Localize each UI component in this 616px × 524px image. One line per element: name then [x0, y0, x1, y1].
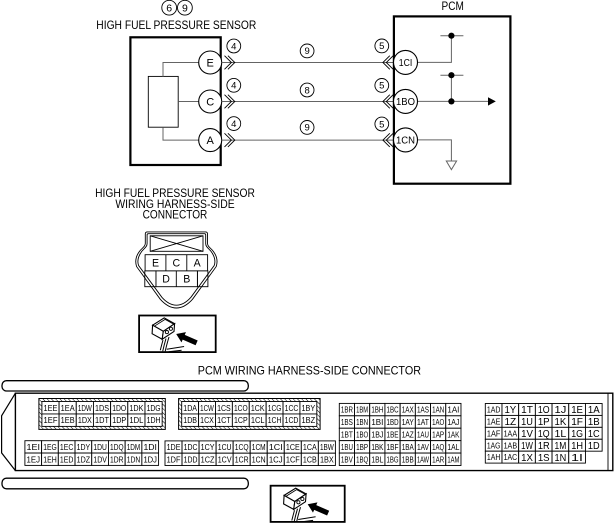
svg-text:4: 4: [231, 81, 236, 92]
svg-text:1BB: 1BB: [402, 454, 414, 464]
svg-text:1AV: 1AV: [417, 442, 429, 452]
svg-text:1CW: 1CW: [200, 403, 214, 413]
svg-text:1EC: 1EC: [60, 442, 74, 452]
svg-text:1N: 1N: [555, 452, 567, 464]
svg-text:1DF: 1DF: [167, 454, 181, 464]
svg-text:1EA: 1EA: [61, 403, 75, 413]
svg-text:1DE: 1DE: [167, 442, 181, 452]
svg-text:1BD: 1BD: [387, 417, 399, 427]
svg-text:C: C: [173, 258, 181, 270]
svg-text:1AZ: 1AZ: [402, 429, 414, 439]
svg-text:1AN: 1AN: [432, 405, 444, 415]
svg-text:1BO: 1BO: [356, 429, 368, 439]
svg-text:1CR: 1CR: [235, 454, 249, 464]
svg-text:8: 8: [304, 85, 309, 96]
svg-text:1DK: 1DK: [129, 403, 143, 413]
svg-text:1DD: 1DD: [184, 454, 198, 464]
svg-text:1AA: 1AA: [504, 428, 518, 438]
svg-text:CONNECTOR: CONNECTOR: [143, 209, 208, 222]
svg-text:1BE: 1BE: [387, 429, 399, 439]
svg-text:1X: 1X: [521, 452, 533, 464]
svg-text:1BO: 1BO: [396, 97, 415, 108]
svg-text:1AL: 1AL: [447, 442, 459, 452]
svg-text:1CX: 1CX: [200, 415, 214, 425]
svg-text:1CS: 1CS: [217, 403, 231, 413]
svg-text:1DN: 1DN: [127, 454, 141, 464]
svg-text:1CN: 1CN: [396, 136, 415, 147]
svg-text:1DO: 1DO: [112, 403, 126, 413]
svg-text:1U: 1U: [521, 416, 533, 428]
svg-text:1CE: 1CE: [286, 442, 300, 452]
svg-text:1CQ: 1CQ: [235, 442, 249, 452]
svg-text:1W: 1W: [521, 440, 533, 452]
svg-text:1AG: 1AG: [487, 440, 501, 450]
svg-text:1G: 1G: [571, 428, 583, 440]
svg-text:1M: 1M: [555, 440, 567, 452]
svg-text:1BV: 1BV: [341, 454, 353, 464]
svg-text:1CU: 1CU: [218, 442, 232, 452]
svg-text:1AT: 1AT: [417, 417, 430, 427]
svg-text:1AU: 1AU: [417, 429, 429, 439]
svg-text:1CY: 1CY: [201, 442, 215, 452]
svg-text:1AO: 1AO: [432, 417, 444, 427]
svg-text:1A: 1A: [588, 404, 600, 416]
svg-text:1BJ: 1BJ: [371, 429, 383, 439]
svg-text:1DM: 1DM: [127, 442, 141, 452]
svg-text:4: 4: [231, 41, 236, 52]
svg-text:1AY: 1AY: [402, 417, 414, 427]
svg-text:1CO: 1CO: [234, 403, 248, 413]
svg-text:1AB: 1AB: [504, 440, 518, 450]
svg-text:5: 5: [379, 81, 384, 92]
svg-text:A: A: [194, 258, 202, 270]
svg-text:1BP: 1BP: [356, 442, 368, 452]
svg-text:1BC: 1BC: [387, 405, 399, 415]
svg-text:1S: 1S: [538, 452, 550, 464]
svg-text:1BN: 1BN: [356, 417, 368, 427]
svg-text:HIGH FUEL PRESSURE SENSOR: HIGH FUEL PRESSURE SENSOR: [96, 19, 256, 32]
svg-text:1F: 1F: [571, 416, 583, 428]
svg-text:1D: 1D: [588, 440, 600, 452]
svg-text:1BL: 1BL: [371, 454, 383, 464]
svg-text:1CT: 1CT: [217, 415, 231, 425]
svg-text:1DG: 1DG: [147, 403, 161, 413]
svg-text:1BG: 1BG: [387, 454, 399, 464]
svg-text:1EJ: 1EJ: [26, 454, 40, 464]
svg-text:1CJ: 1CJ: [269, 454, 283, 464]
svg-text:1DW: 1DW: [78, 403, 93, 413]
svg-text:1O: 1O: [538, 404, 550, 416]
svg-text:D: D: [162, 274, 170, 286]
svg-text:9: 9: [304, 123, 309, 134]
svg-text:1BS: 1BS: [341, 417, 353, 427]
svg-text:1CZ: 1CZ: [201, 454, 215, 464]
svg-text:1DJ: 1DJ: [143, 454, 157, 464]
svg-text:1AD: 1AD: [487, 404, 500, 414]
svg-text:1DI: 1DI: [143, 442, 157, 452]
svg-text:B: B: [183, 274, 190, 286]
svg-text:1CD: 1CD: [285, 415, 299, 425]
svg-text:E: E: [207, 57, 214, 69]
svg-text:1AK: 1AK: [447, 429, 459, 439]
svg-text:4: 4: [231, 119, 236, 130]
svg-text:1BF: 1BF: [387, 442, 399, 452]
svg-text:6: 6: [166, 2, 172, 14]
svg-text:1CA: 1CA: [303, 442, 317, 452]
svg-text:1CG: 1CG: [268, 403, 282, 413]
svg-text:1EI: 1EI: [26, 442, 40, 452]
svg-text:1BZ: 1BZ: [302, 415, 316, 425]
svg-text:C: C: [206, 96, 214, 108]
svg-text:1EB: 1EB: [61, 415, 75, 425]
svg-text:1AC: 1AC: [504, 452, 517, 462]
svg-text:1CM: 1CM: [252, 442, 266, 452]
svg-text:5: 5: [379, 119, 384, 130]
svg-text:1BK: 1BK: [371, 442, 383, 452]
svg-text:1CN: 1CN: [252, 454, 266, 464]
svg-text:1AR: 1AR: [432, 454, 444, 464]
svg-text:1H: 1H: [571, 440, 583, 452]
svg-text:E: E: [152, 258, 159, 270]
svg-text:1AH: 1AH: [487, 452, 500, 462]
svg-text:9: 9: [304, 46, 309, 57]
svg-text:1C: 1C: [588, 428, 600, 440]
svg-text:1EE: 1EE: [44, 403, 58, 413]
svg-text:1CF: 1CF: [286, 454, 300, 464]
svg-text:1DA: 1DA: [183, 403, 197, 413]
svg-text:1T: 1T: [521, 404, 533, 416]
svg-text:1CL: 1CL: [251, 415, 265, 425]
svg-text:1J: 1J: [555, 404, 567, 416]
svg-text:1V: 1V: [521, 428, 533, 440]
svg-text:1DT: 1DT: [95, 415, 110, 425]
svg-text:1CV: 1CV: [218, 454, 232, 464]
svg-text:1CH: 1CH: [268, 415, 282, 425]
svg-text:1DH: 1DH: [147, 415, 161, 425]
svg-text:1DY: 1DY: [77, 442, 91, 452]
svg-text:1K: 1K: [555, 416, 567, 428]
svg-text:1AE: 1AE: [487, 416, 501, 426]
svg-text:5: 5: [379, 41, 384, 52]
svg-text:1ED: 1ED: [60, 454, 74, 464]
svg-text:1DQ: 1DQ: [110, 442, 124, 452]
svg-text:1BM: 1BM: [356, 405, 368, 415]
svg-text:1DU: 1DU: [93, 442, 107, 452]
svg-text:1BA: 1BA: [402, 442, 414, 452]
svg-text:1DX: 1DX: [78, 415, 92, 425]
svg-text:1R: 1R: [538, 440, 550, 452]
svg-text:1BW: 1BW: [320, 442, 334, 452]
svg-text:1EH: 1EH: [43, 454, 57, 464]
svg-text:A: A: [207, 135, 215, 147]
svg-text:1DS: 1DS: [95, 403, 109, 413]
svg-text:1B: 1B: [588, 416, 600, 428]
svg-text:1Y: 1Y: [504, 404, 516, 416]
svg-text:1AP: 1AP: [432, 429, 444, 439]
svg-text:1Z: 1Z: [504, 416, 516, 428]
svg-text:1CP: 1CP: [234, 415, 248, 425]
svg-text:1BU: 1BU: [341, 442, 353, 452]
svg-text:1AX: 1AX: [402, 405, 414, 415]
svg-text:1AF: 1AF: [487, 428, 500, 438]
svg-text:PCM: PCM: [442, 0, 464, 13]
svg-text:1BQ: 1BQ: [356, 454, 368, 464]
svg-text:1I: 1I: [571, 452, 583, 464]
svg-text:1CC: 1CC: [285, 403, 299, 413]
svg-text:1EG: 1EG: [43, 442, 57, 452]
svg-text:1BI: 1BI: [371, 417, 383, 427]
svg-text:1CI: 1CI: [269, 442, 283, 452]
svg-text:1AQ: 1AQ: [432, 442, 444, 452]
svg-text:1BY: 1BY: [302, 403, 316, 413]
svg-text:1DV: 1DV: [93, 454, 107, 464]
svg-text:1AS: 1AS: [417, 405, 429, 415]
svg-text:1AW: 1AW: [417, 454, 430, 464]
svg-text:9: 9: [182, 2, 188, 14]
svg-text:1DL: 1DL: [129, 415, 143, 425]
svg-text:1P: 1P: [538, 416, 550, 428]
svg-text:1CI: 1CI: [399, 58, 413, 69]
svg-text:1DC: 1DC: [184, 442, 198, 452]
svg-text:1DZ: 1DZ: [77, 454, 91, 464]
svg-text:1Q: 1Q: [538, 428, 550, 440]
svg-text:1BH: 1BH: [371, 405, 383, 415]
svg-text:PCM WIRING HARNESS-SIDE CONNEC: PCM WIRING HARNESS-SIDE CONNECTOR: [198, 365, 421, 378]
svg-text:1DP: 1DP: [112, 415, 126, 425]
svg-text:1DB: 1DB: [183, 415, 197, 425]
svg-text:1E: 1E: [571, 404, 583, 416]
svg-text:1BT: 1BT: [341, 429, 354, 439]
svg-text:1BX: 1BX: [320, 454, 334, 464]
svg-text:1CB: 1CB: [303, 454, 317, 464]
svg-text:1DR: 1DR: [110, 454, 124, 464]
svg-text:1CK: 1CK: [251, 403, 265, 413]
svg-text:1AJ: 1AJ: [447, 417, 459, 427]
svg-text:1EF: 1EF: [44, 415, 58, 425]
svg-text:1AI: 1AI: [447, 405, 459, 415]
svg-text:1L: 1L: [555, 428, 567, 440]
svg-text:1AM: 1AM: [447, 454, 459, 464]
svg-text:1BR: 1BR: [341, 405, 353, 415]
